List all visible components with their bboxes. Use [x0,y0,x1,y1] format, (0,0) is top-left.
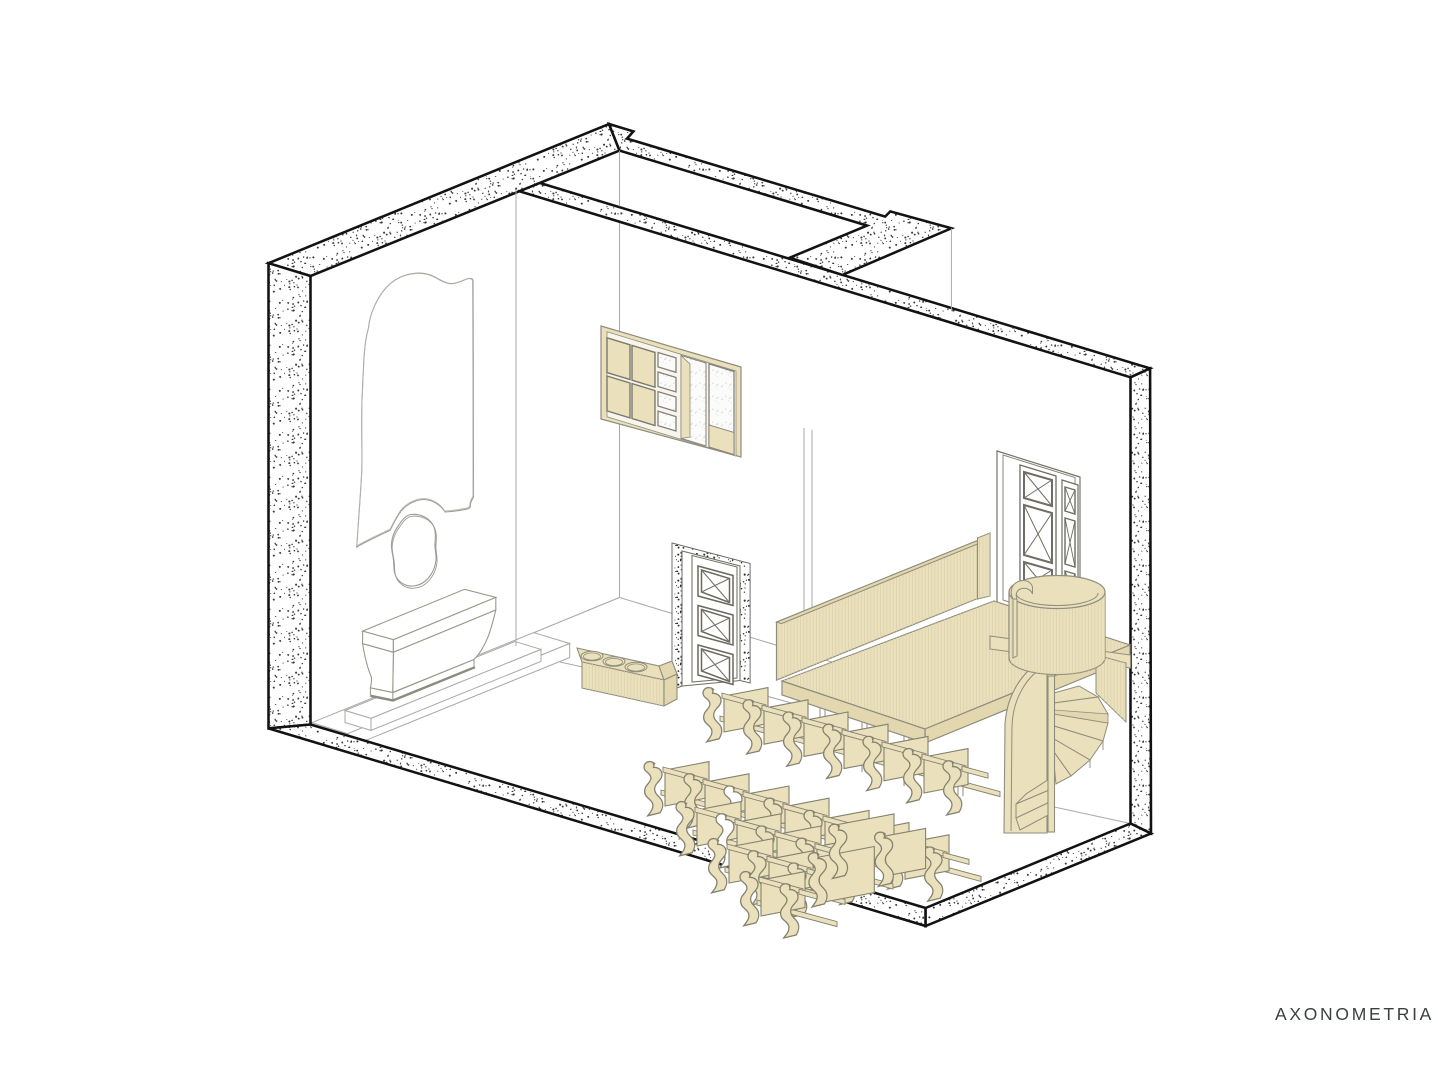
svg-text:AXONOMETRIA: AXONOMETRIA [1275,1004,1434,1024]
